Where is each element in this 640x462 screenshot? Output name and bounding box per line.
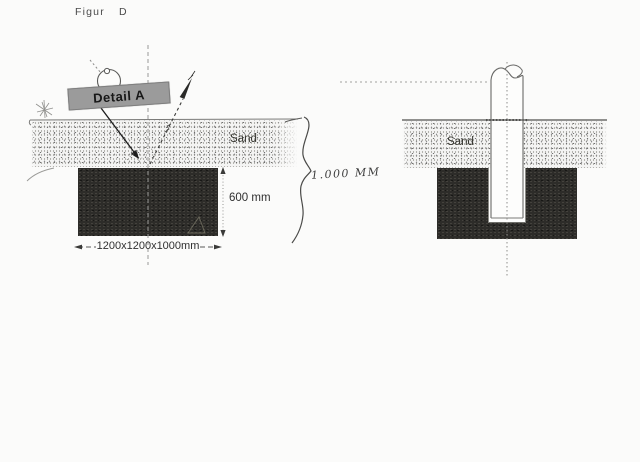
pole-slot	[488, 168, 526, 223]
scribble-starburst-icon	[36, 100, 53, 118]
sand-label-left: Sand	[230, 133, 257, 145]
detail-a-text: Detail A	[93, 87, 146, 106]
sand-label-right: Sand	[447, 136, 474, 148]
figure-title-letter: D	[119, 6, 128, 18]
figure-title: FigurD	[75, 6, 128, 18]
depth-dimension-label: 600 mm	[229, 192, 271, 204]
size-dimension-label: 1200x1200x1000mm	[92, 240, 204, 252]
sand-layer-left	[30, 120, 298, 167]
scanned-figure-page: FigurD	[0, 0, 640, 462]
handwritten-dimension-label: 1.000 MM	[311, 165, 381, 182]
dimension-600mm	[220, 167, 225, 237]
scribble-curve-icon	[27, 168, 54, 181]
concrete-block-left	[78, 168, 218, 236]
detail-a-label: Detail A	[67, 81, 170, 110]
pole-body	[491, 70, 523, 170]
figure-title-word: Figur	[75, 6, 105, 18]
